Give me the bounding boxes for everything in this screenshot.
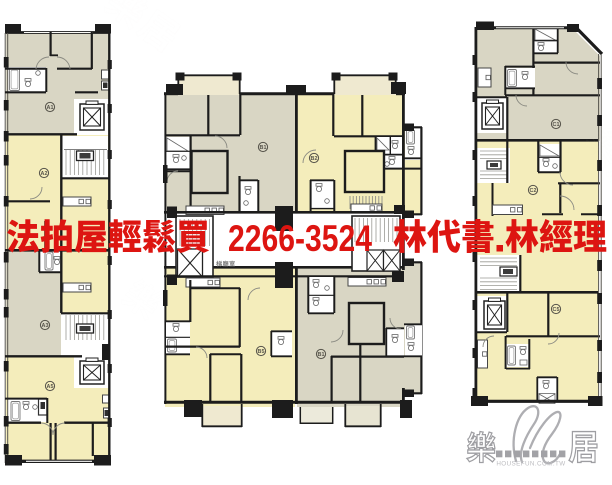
svg-text:B1: B1 bbox=[318, 352, 325, 358]
svg-text:HOUSEFUN.COM.TW: HOUSEFUN.COM.TW bbox=[496, 461, 565, 468]
svg-text:A1: A1 bbox=[47, 105, 54, 111]
svg-text:B5: B5 bbox=[258, 349, 265, 355]
svg-text:A2: A2 bbox=[41, 171, 48, 177]
svg-text:A3: A3 bbox=[42, 323, 49, 329]
svg-text:B2: B2 bbox=[311, 156, 318, 162]
svg-text:B1: B1 bbox=[260, 145, 267, 151]
svg-text:C5: C5 bbox=[553, 307, 560, 313]
svg-text:C2: C2 bbox=[530, 188, 537, 194]
svg-text:2266-3524: 2266-3524 bbox=[228, 217, 372, 259]
svg-text:C1: C1 bbox=[553, 122, 560, 128]
svg-text:A5: A5 bbox=[47, 384, 54, 390]
